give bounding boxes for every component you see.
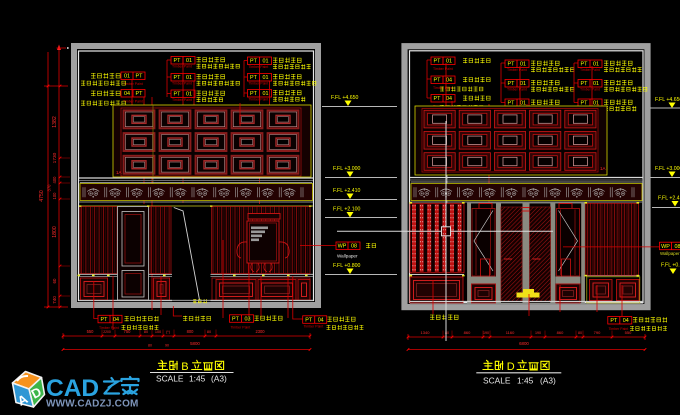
svg-text:WP: WP [338, 244, 347, 250]
svg-text:F.FL +2.410: F.FL +2.410 [333, 188, 360, 194]
svg-text:860: 860 [557, 330, 564, 335]
svg-text:Wallpaper: Wallpaper [660, 251, 680, 256]
svg-text:F.FL +4.650: F.FL +4.650 [331, 95, 358, 101]
svg-text:SCALE: SCALE [483, 376, 511, 386]
svg-text:PT: PT [305, 318, 313, 324]
svg-text:PT: PT [434, 96, 442, 102]
svg-text:750: 750 [124, 329, 132, 334]
svg-text:01: 01 [124, 74, 130, 80]
svg-text:PT: PT [250, 91, 258, 97]
svg-text:B: B [181, 361, 188, 373]
svg-text:PT: PT [136, 74, 144, 80]
svg-text:04: 04 [318, 318, 324, 324]
svg-text:1A: 1A [600, 166, 606, 171]
svg-text:PT: PT [174, 58, 182, 64]
svg-text:PT: PT [508, 81, 516, 87]
svg-text:WWW.CADZJ.COM: WWW.CADZJ.COM [46, 399, 139, 410]
svg-text:Wallpaper: Wallpaper [337, 254, 358, 259]
svg-text:1730: 1730 [52, 152, 58, 163]
svg-text:(A3): (A3) [211, 373, 227, 383]
svg-text:PT: PT [434, 59, 442, 65]
svg-text:4750: 4750 [39, 190, 45, 202]
svg-text:6800: 6800 [519, 341, 529, 346]
svg-text:1:45: 1:45 [517, 376, 534, 386]
svg-text:PT: PT [581, 81, 589, 87]
svg-text:01: 01 [520, 81, 526, 87]
svg-text:04: 04 [623, 318, 629, 324]
svg-text:F.FL +3.000: F.FL +3.000 [333, 166, 360, 172]
svg-text:800: 800 [187, 329, 195, 334]
svg-text:1160: 1160 [506, 330, 515, 335]
svg-text:100: 100 [52, 192, 57, 200]
svg-text:90: 90 [165, 344, 169, 348]
svg-text:PT: PT [610, 318, 618, 324]
svg-text:80: 80 [207, 330, 211, 334]
svg-text:60: 60 [52, 278, 57, 283]
svg-text:80: 80 [148, 344, 152, 348]
svg-text:Timber Paint: Timber Paint [580, 87, 600, 91]
svg-text:860: 860 [464, 330, 471, 335]
svg-text:550: 550 [87, 329, 95, 334]
svg-text:PT: PT [581, 62, 589, 68]
svg-text:Timber Paint: Timber Paint [507, 68, 527, 72]
svg-text:(A3): (A3) [540, 376, 556, 386]
svg-text:PT: PT [434, 78, 442, 84]
svg-text:Timber Paint: Timber Paint [99, 326, 119, 330]
svg-text:1A: 1A [116, 170, 122, 175]
svg-text:Timber Paint: Timber Paint [249, 65, 269, 69]
svg-text:04: 04 [446, 78, 452, 84]
svg-text:01: 01 [263, 75, 269, 81]
svg-text:PT: PT [136, 91, 144, 97]
svg-text:550: 550 [625, 330, 632, 335]
svg-text:Timber Paint: Timber Paint [249, 97, 269, 101]
svg-text:1340: 1340 [421, 330, 431, 335]
svg-text:Timber Paint: Timber Paint [172, 81, 192, 85]
svg-text:Timber Paint: Timber Paint [580, 68, 600, 72]
svg-text:04: 04 [124, 91, 130, 97]
svg-text:100: 100 [155, 330, 161, 334]
svg-text:190: 190 [483, 331, 489, 335]
svg-text:1382: 1382 [52, 116, 58, 128]
svg-text:5800: 5800 [190, 341, 200, 346]
svg-text:08: 08 [675, 244, 680, 250]
svg-text:01: 01 [520, 62, 526, 68]
svg-text:740: 740 [52, 296, 57, 304]
svg-text:Timber Paint: Timber Paint [172, 64, 192, 68]
svg-text:790: 790 [594, 330, 601, 335]
svg-text:Timber Paint: Timber Paint [172, 98, 192, 102]
svg-text:04: 04 [113, 317, 119, 323]
svg-text:WP: WP [661, 244, 670, 250]
svg-text:01: 01 [186, 58, 192, 64]
svg-text:370: 370 [47, 184, 52, 192]
svg-text:F.FL +4.650: F.FL +4.650 [655, 97, 680, 103]
svg-text:F.FL +2.410: F.FL +2.410 [658, 196, 680, 202]
svg-text:04: 04 [446, 96, 452, 102]
svg-text:F.FL +2.100: F.FL +2.100 [333, 207, 360, 213]
svg-text:F.FL +0.800: F.FL +0.800 [333, 263, 360, 269]
svg-text:01: 01 [593, 62, 599, 68]
svg-text:Timber Paint: Timber Paint [231, 325, 251, 329]
svg-text:(*): (*) [166, 330, 170, 334]
svg-text:PT: PT [174, 75, 182, 81]
svg-text:F.FL +3.000: F.FL +3.000 [655, 166, 680, 172]
svg-text:01: 01 [263, 91, 269, 97]
svg-text:190: 190 [535, 331, 541, 335]
svg-text:Timber Paint: Timber Paint [123, 82, 143, 86]
svg-text:1800: 1800 [52, 226, 58, 238]
svg-text:01: 01 [593, 81, 599, 87]
svg-text:PT: PT [508, 62, 516, 68]
svg-text:Timber Paint: Timber Paint [123, 100, 143, 104]
svg-text:1:45: 1:45 [189, 373, 206, 383]
svg-text:Timber Paint: Timber Paint [433, 67, 453, 71]
svg-text:400: 400 [52, 176, 57, 184]
svg-text:03: 03 [245, 317, 251, 323]
svg-text:F.FL +0.800: F.FL +0.800 [661, 263, 680, 269]
svg-text:80: 80 [578, 331, 582, 335]
svg-text:PT: PT [232, 317, 240, 323]
svg-text:Timber Paint: Timber Paint [507, 87, 527, 91]
svg-text:2300: 2300 [255, 329, 265, 334]
svg-text:Timber Paint: Timber Paint [249, 81, 269, 85]
svg-text:D: D [507, 361, 515, 373]
svg-text:PT: PT [250, 59, 258, 65]
svg-text:80: 80 [144, 330, 148, 334]
svg-text:Timber Paint: Timber Paint [304, 325, 324, 329]
svg-text:01: 01 [186, 75, 192, 81]
svg-text:PT: PT [250, 75, 258, 81]
svg-text:01: 01 [186, 92, 192, 98]
svg-text:SCALE: SCALE [156, 373, 184, 383]
svg-text:PT: PT [174, 92, 182, 98]
svg-text:01: 01 [446, 59, 452, 65]
svg-text:01: 01 [263, 59, 269, 65]
svg-text:2200: 2200 [103, 330, 111, 334]
svg-text:08: 08 [351, 244, 357, 250]
svg-text:PT: PT [101, 317, 109, 323]
